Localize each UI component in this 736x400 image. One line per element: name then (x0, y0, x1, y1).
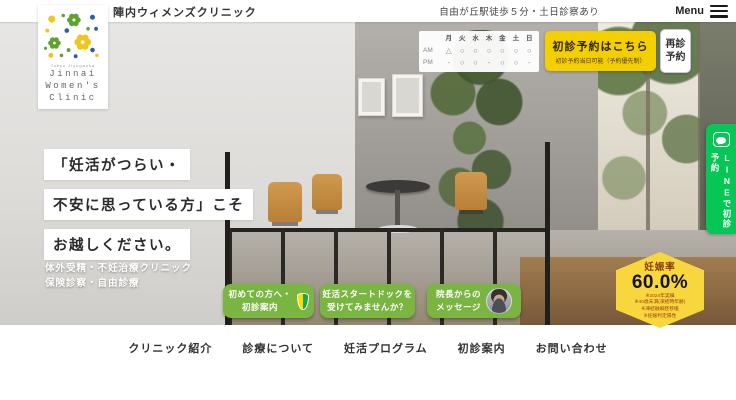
line-app-icon (713, 132, 730, 147)
nav-item-program[interactable]: 妊活プログラム (344, 340, 428, 356)
schedule-mark: ○ (469, 45, 482, 57)
director-message-button[interactable]: 院長からの メッセージ (427, 284, 521, 318)
first-visit-note: 初診予約当日可能（予約優先制） (555, 56, 645, 65)
schedule-day: 月 (442, 33, 455, 45)
nav-item-first-visit[interactable]: 初診案内 (458, 340, 506, 356)
schedule-mark: ○ (509, 57, 522, 69)
headline-line3: お越しください。 (44, 229, 190, 260)
nav-item-clinic[interactable]: クリニック紹介 (128, 340, 212, 356)
cta1-line1: 初めての方へ・ (228, 288, 291, 301)
logo-line1: Jinnai (49, 68, 96, 80)
clinic-name: 陣内ウィメンズクリニック (113, 4, 257, 20)
beginner-mark-icon (297, 293, 309, 310)
schedule-mark: ○ (455, 45, 468, 57)
main-navigation: クリニック紹介 診療について 妊活プログラム 初診案内 お問い合わせ (0, 325, 736, 356)
cta2-line1: 妊活スタートドックを (322, 288, 412, 301)
line-tab-label: LINEで初診予約 (709, 153, 733, 234)
rate-value: 60.0% (632, 273, 688, 294)
hero-headline: 「妊活がつらい・ 不安に思っている方」こそ お越しください。 (44, 149, 253, 260)
schedule-mark: ○ (455, 57, 468, 69)
cta3-line2: メッセージ (436, 301, 481, 314)
schedule-mark: ○ (482, 45, 495, 57)
schedule-day: 水 (469, 33, 482, 45)
schedule-mark: ○ (509, 45, 522, 57)
schedule-mark: - (482, 57, 495, 69)
revisit-label-line1: 再診 (666, 38, 686, 51)
cta3-line1: 院長からの (436, 288, 481, 301)
hero-subtext: 体外受精・不妊治療クリニック 保険診察・自由診療 (45, 262, 192, 291)
top-header: 陣内ウィメンズクリニック 自由が丘駅徒歩５分・土日診察あり Menu (0, 0, 736, 22)
schedule-mark: ○ (496, 45, 509, 57)
schedule-mark: △ (442, 45, 455, 57)
logo-line2: Women's (45, 80, 100, 92)
schedule-mark: ○ (469, 57, 482, 69)
headline-line2: 不安に思っている方」こそ (44, 189, 253, 220)
first-visit-label: 初診予約はこちら (553, 38, 649, 54)
schedule-mark: - (442, 57, 455, 69)
first-visit-reservation-button[interactable]: 初診予約はこちら 初診予約当日可能（予約優先制） (545, 31, 656, 71)
hero-subtext-line1: 体外受精・不妊治療クリニック (45, 262, 192, 277)
schedule-day: 日 (523, 33, 536, 45)
schedule-mark: ○ (496, 57, 509, 69)
cta2-line2: 受けてみませんか？ (322, 301, 412, 314)
schedule-mark: ○ (523, 45, 536, 57)
hero-subtext-line2: 保険診察・自由診療 (45, 277, 192, 292)
photo-post (545, 142, 550, 325)
clinic-logo[interactable]: Tokyo Jiyugaoka Jinnai Women's Clinic (38, 5, 108, 109)
revisit-reservation-button[interactable]: 再診 予約 (660, 29, 691, 73)
cta1-line2: 初診案内 (228, 301, 291, 314)
bottom-bar: クリニック紹介 診療について 妊活プログラム 初診案内 お問い合わせ (0, 325, 736, 400)
first-time-guide-button[interactable]: 初めての方へ・ 初診案内 (223, 284, 314, 318)
schedule-day: 木 (482, 33, 495, 45)
menu-button[interactable]: Menu (675, 5, 728, 18)
schedule-table: 月 火 水 木 金 土 日 AM △ ○ ○ ○ ○ ○ ○ PM - ○ ○ … (419, 31, 539, 72)
access-note: 自由が丘駅徒歩５分・土日診察あり (439, 4, 599, 18)
revisit-label-line2: 予約 (666, 51, 686, 64)
photo-chair (455, 172, 487, 210)
headline-line1: 「妊活がつらい・ (44, 149, 190, 180)
menu-label: Menu (675, 5, 704, 17)
line-reservation-tab[interactable]: LINEで初診予約 (706, 124, 736, 234)
schedule-day: 金 (496, 33, 509, 45)
fertility-checkup-button[interactable]: 妊活スタートドックを 受けてみませんか？ (320, 284, 415, 318)
rate-title: 妊娠率 (644, 259, 676, 273)
schedule-day: 火 (455, 33, 468, 45)
nav-item-contact[interactable]: お問い合わせ (536, 340, 608, 356)
logo-line3: Clinic (49, 92, 96, 104)
schedule-mark: - (523, 57, 536, 69)
rate-note4: ※妊娠判定陽性 (644, 314, 677, 321)
photo-chair (312, 174, 342, 210)
nav-item-treatment[interactable]: 診療について (242, 340, 314, 356)
photo-table-leg (395, 190, 400, 228)
logo-flowers-icon (42, 9, 104, 61)
photo-picture-frame (358, 78, 385, 116)
photo-picture-frame (392, 74, 423, 117)
schedule-row-label: PM (422, 57, 442, 69)
schedule-day: 土 (509, 33, 522, 45)
hamburger-icon (710, 5, 728, 18)
director-photo (486, 288, 512, 314)
schedule-row-label: AM (422, 45, 442, 57)
photo-chair (268, 182, 302, 222)
